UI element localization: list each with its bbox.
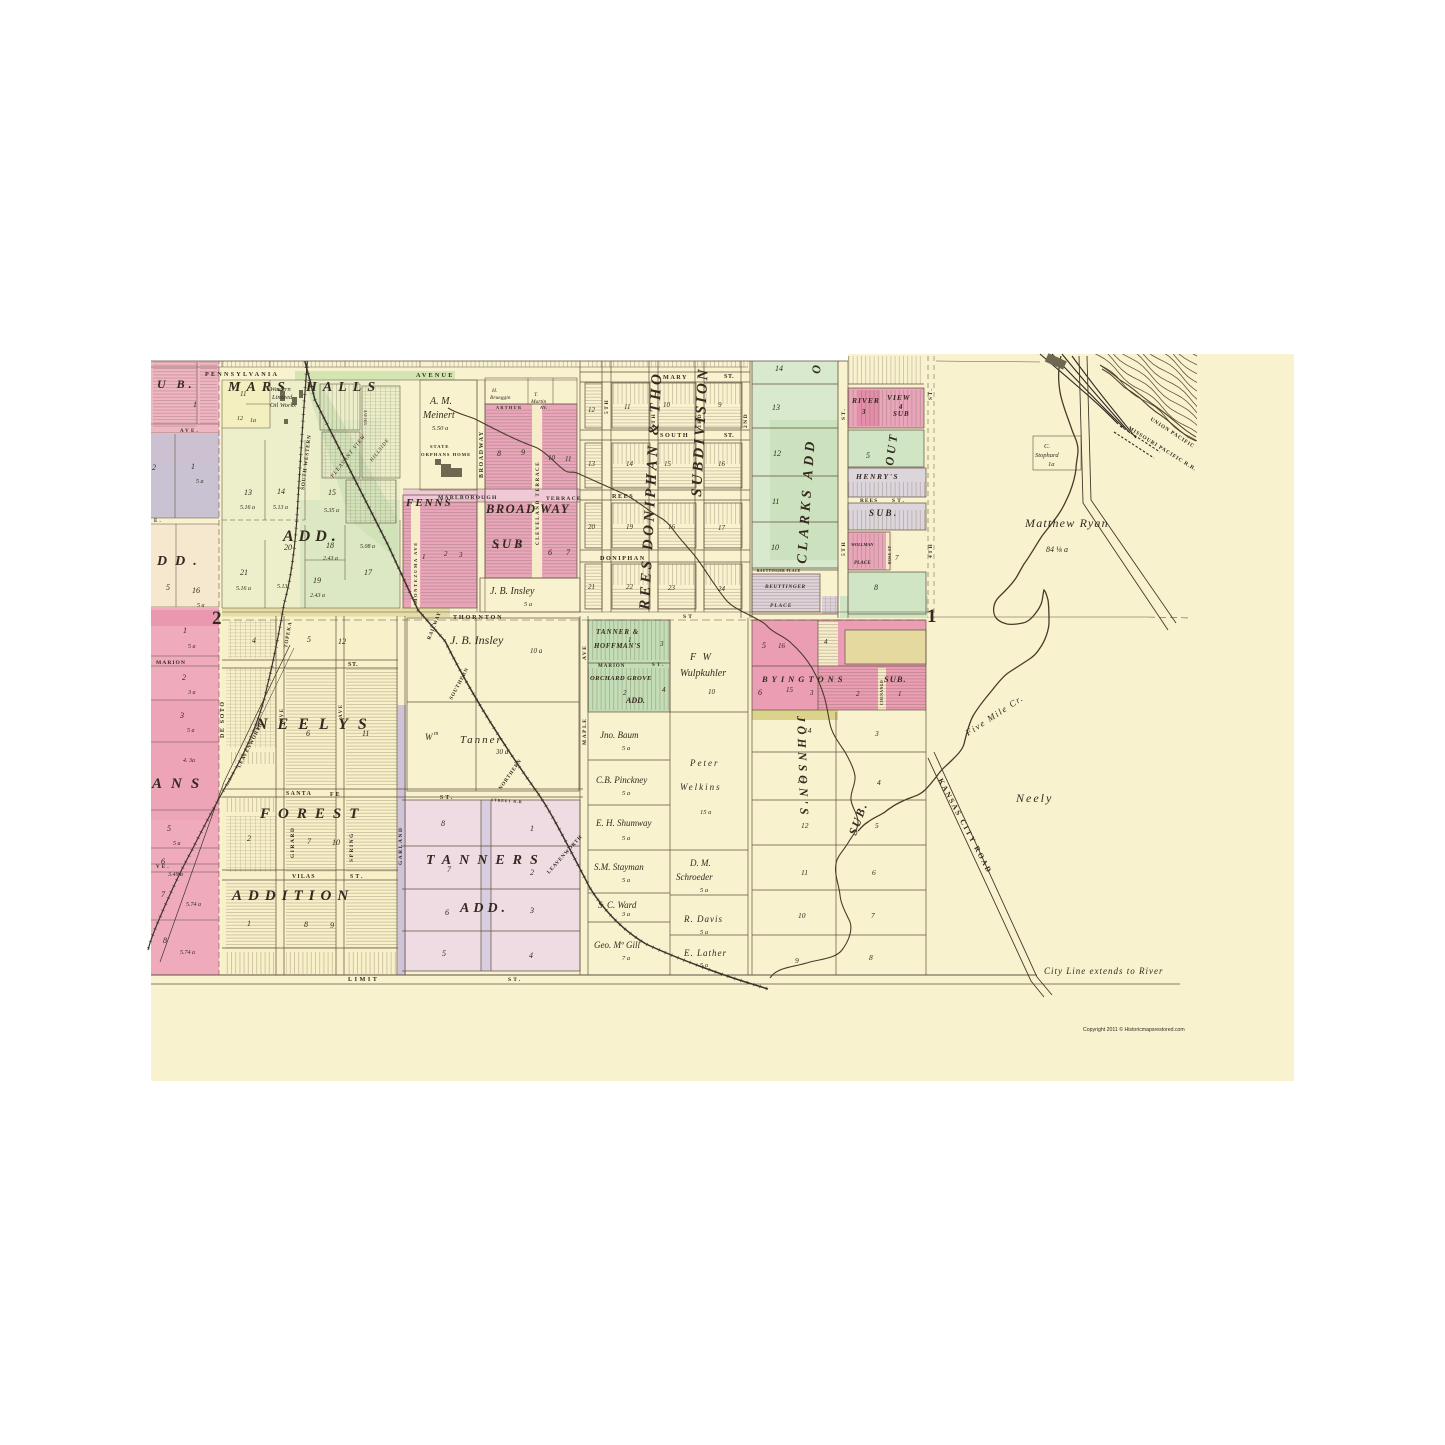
svg-text:FE: FE — [330, 792, 342, 798]
svg-text:5 a: 5 a — [622, 745, 630, 752]
svg-text:5.16 a: 5.16 a — [240, 505, 255, 511]
svg-text:10: 10 — [663, 401, 671, 409]
svg-text:5: 5 — [166, 583, 170, 592]
svg-text:Copyright 2011 © Historicmaps: Copyright 2011 © Historicmapsrestored.co… — [1083, 1026, 1185, 1033]
svg-text:5: 5 — [866, 451, 870, 460]
svg-text:16: 16 — [192, 586, 200, 595]
svg-text:6: 6 — [758, 688, 762, 697]
svg-text:BROAD: BROAD — [485, 502, 537, 516]
svg-text:WAY: WAY — [540, 502, 570, 516]
svg-text:5 a: 5 a — [622, 790, 630, 797]
svg-text:AVE: AVE — [582, 645, 588, 661]
svg-text:2: 2 — [623, 689, 627, 697]
svg-text:7 a: 7 a — [622, 955, 630, 962]
svg-text:22: 22 — [626, 583, 634, 591]
svg-text:BAUTTINGER PLACE: BAUTTINGER PLACE — [757, 569, 801, 573]
svg-text:Meinert: Meinert — [422, 410, 455, 421]
svg-text:19: 19 — [626, 523, 634, 531]
svg-text:LIMIT: LIMIT — [348, 976, 379, 983]
svg-text:6: 6 — [872, 868, 876, 877]
svg-text:BEUTTINGER: BEUTTINGER — [764, 584, 806, 590]
svg-text:20: 20 — [284, 543, 292, 552]
svg-text:3: 3 — [659, 640, 664, 648]
svg-text:14: 14 — [804, 726, 812, 735]
svg-text:11: 11 — [362, 729, 369, 738]
svg-text:7: 7 — [895, 554, 899, 562]
svg-text:8: 8 — [304, 920, 308, 929]
svg-text:8: 8 — [497, 449, 501, 458]
svg-text:3: 3 — [458, 551, 463, 559]
svg-text:20: 20 — [588, 523, 596, 531]
svg-text:ST.: ST. — [892, 498, 906, 504]
svg-text:3 a: 3 a — [187, 690, 196, 696]
svg-text:PENNSYLVANIA: PENNSYLVANIA — [205, 371, 279, 378]
svg-text:4TH: 4TH — [928, 543, 934, 558]
svg-text:Western: Western — [270, 386, 291, 393]
svg-text:2: 2 — [152, 463, 156, 472]
svg-text:3: 3 — [809, 689, 814, 697]
svg-text:12: 12 — [588, 406, 596, 414]
svg-text:City Line extends to River: City Line extends to River — [1044, 966, 1163, 976]
svg-text:1: 1 — [191, 462, 195, 471]
svg-text:Neely: Neely — [1015, 791, 1053, 805]
svg-text:SUB: SUB — [893, 410, 910, 418]
svg-text:5.13 a: 5.13 a — [273, 505, 288, 511]
svg-text:15 a: 15 a — [700, 809, 711, 816]
svg-text:15: 15 — [328, 488, 336, 497]
svg-text:4: 4 — [252, 636, 256, 645]
svg-text:SOUTH: SOUTH — [660, 432, 689, 439]
svg-text:Tanner: Tanner — [460, 734, 503, 746]
svg-text:2: 2 — [182, 673, 186, 682]
svg-text:5 a: 5 a — [196, 479, 204, 485]
svg-text:REES: REES — [860, 498, 878, 504]
svg-text:12: 12 — [773, 449, 781, 458]
svg-text:ST.: ST. — [508, 977, 522, 983]
svg-text:5 a: 5 a — [622, 877, 630, 884]
svg-text:ORPHANS HOME: ORPHANS HOME — [421, 452, 471, 457]
svg-text:1a: 1a — [1048, 461, 1055, 468]
svg-text:C.: C. — [1044, 443, 1050, 450]
svg-text:1: 1 — [422, 553, 426, 561]
svg-text:ST.: ST. — [724, 432, 734, 439]
svg-text:1: 1 — [183, 626, 187, 635]
svg-text:23: 23 — [668, 584, 676, 592]
svg-text:11: 11 — [772, 497, 779, 506]
svg-text:5 a: 5 a — [524, 601, 532, 608]
svg-text:14: 14 — [626, 460, 634, 468]
svg-text:4: 4 — [898, 403, 903, 411]
svg-text:5 a: 5 a — [188, 644, 196, 650]
svg-text:3 a: 3 a — [621, 911, 630, 918]
svg-text:13: 13 — [244, 488, 252, 497]
svg-text:Geo. M⁢º Gill: Geo. M⁢º Gill — [594, 940, 641, 950]
svg-text:ARTHUR: ARTHUR — [496, 405, 522, 410]
svg-text:21: 21 — [588, 583, 595, 591]
svg-text:17: 17 — [364, 568, 373, 577]
svg-text:SPRING: SPRING — [349, 832, 355, 862]
svg-text:5TH: 5TH — [604, 399, 610, 414]
svg-text:9: 9 — [718, 401, 722, 409]
svg-text:MAPLE: MAPLE — [582, 718, 588, 745]
svg-text:5.16 a: 5.16 a — [236, 586, 251, 592]
svg-text:R. Davis: R. Davis — [683, 914, 723, 924]
svg-text:10 a: 10 a — [530, 647, 543, 655]
svg-text:E. Lather: E. Lather — [683, 948, 727, 958]
svg-text:5 a: 5 a — [187, 728, 195, 734]
svg-text:THORNTON: THORNTON — [453, 614, 503, 621]
svg-text:2.43 a: 2.43 a — [323, 555, 338, 562]
svg-text:16: 16 — [778, 642, 786, 650]
svg-text:2: 2 — [444, 550, 448, 558]
svg-text:6: 6 — [161, 857, 165, 866]
svg-text:5.50 a: 5.50 a — [432, 425, 448, 432]
svg-text:Oil Works: Oil Works — [270, 402, 296, 409]
svg-text:13: 13 — [797, 776, 805, 785]
svg-text:FENNS: FENNS — [405, 497, 453, 509]
svg-text:4: 4 — [495, 542, 499, 551]
svg-text:9: 9 — [521, 448, 525, 457]
svg-text:VILAS: VILAS — [292, 874, 316, 880]
svg-text:2.43 a: 2.43 a — [310, 592, 325, 599]
svg-text:ST: ST — [683, 614, 694, 620]
svg-text:TANNER &: TANNER & — [596, 628, 639, 636]
svg-text:12: 12 — [237, 416, 243, 422]
svg-text:11: 11 — [565, 455, 571, 463]
svg-text:11: 11 — [624, 403, 630, 411]
svg-text:11: 11 — [240, 390, 246, 398]
svg-text:5.35 a: 5.35 a — [324, 508, 339, 514]
svg-text:5: 5 — [875, 821, 879, 830]
svg-text:1: 1 — [193, 400, 197, 409]
svg-text:5.08 a: 5.08 a — [360, 544, 375, 550]
svg-text:5 a: 5 a — [700, 929, 708, 936]
svg-text:3.49 a: 3.49 a — [167, 871, 183, 878]
svg-text:4: 4 — [662, 686, 666, 694]
svg-text:MARION: MARION — [598, 664, 625, 669]
svg-text:5: 5 — [442, 949, 446, 958]
svg-text:E.: E. — [154, 519, 163, 524]
svg-text:H.: H. — [491, 388, 497, 394]
svg-text:BROADWAY: BROADWAY — [479, 430, 485, 478]
svg-text:6: 6 — [306, 729, 310, 738]
svg-text:S. C. Ward: S. C. Ward — [598, 900, 637, 910]
svg-text:18: 18 — [326, 541, 334, 550]
svg-text:2: 2 — [247, 834, 251, 843]
svg-text:ST.: ST. — [928, 388, 934, 400]
svg-text:21: 21 — [240, 568, 248, 577]
svg-text:NEELYS: NEELYS — [255, 716, 377, 733]
svg-text:3: 3 — [179, 711, 184, 720]
svg-text:84 ⅛ a: 84 ⅛ a — [1046, 545, 1068, 554]
svg-text:MARY: MARY — [663, 374, 688, 381]
svg-text:14: 14 — [775, 364, 783, 373]
svg-text:RIVER: RIVER — [851, 396, 880, 405]
svg-text:5.74 a: 5.74 a — [186, 901, 201, 908]
svg-text:12: 12 — [338, 637, 346, 646]
svg-text:Peter: Peter — [689, 758, 720, 768]
svg-text:12: 12 — [801, 821, 809, 830]
svg-text:SUB.: SUB. — [884, 674, 907, 684]
svg-text:HOFFMAN'S: HOFFMAN'S — [593, 642, 641, 650]
svg-text:Stophard: Stophard — [1035, 452, 1059, 459]
svg-text:5.74 a: 5.74 a — [180, 949, 195, 956]
svg-text:Welkins: Welkins — [680, 782, 722, 792]
svg-text:C.B. Pinckney: C.B. Pinckney — [596, 775, 647, 785]
svg-text:10: 10 — [548, 454, 556, 462]
svg-text:9: 9 — [795, 956, 799, 965]
svg-text:HALLS: HALLS — [305, 380, 381, 395]
svg-text:15: 15 — [664, 460, 672, 468]
svg-text:14: 14 — [277, 487, 285, 496]
svg-text:1a: 1a — [250, 418, 256, 424]
svg-text:10: 10 — [798, 911, 806, 920]
svg-text:ST.: ST. — [724, 373, 734, 380]
svg-text:m: m — [434, 731, 439, 737]
svg-text:PLACE: PLACE — [770, 603, 792, 609]
svg-text:AV.: AV. — [540, 405, 548, 410]
svg-text:8: 8 — [441, 819, 445, 828]
svg-text:T.: T. — [534, 392, 538, 398]
svg-text:SUB.: SUB. — [869, 508, 899, 518]
svg-text:ADDITION: ADDITION — [231, 888, 354, 904]
svg-text:2: 2 — [856, 690, 860, 698]
svg-text:3: 3 — [874, 729, 879, 738]
svg-text:24: 24 — [718, 585, 726, 593]
svg-text:DD.: DD. — [156, 554, 205, 569]
svg-text:HENRY'S: HENRY'S — [855, 472, 899, 481]
svg-text:Wulpkuhler: Wulpkuhler — [680, 668, 726, 679]
svg-text:8: 8 — [163, 936, 167, 945]
svg-text:2ND: 2ND — [743, 413, 749, 428]
svg-text:STATE: STATE — [430, 444, 449, 449]
svg-text:D. M.: D. M. — [689, 858, 711, 868]
svg-text:6: 6 — [445, 908, 449, 917]
svg-text:MARION: MARION — [156, 660, 186, 666]
svg-text:ANS: ANS — [151, 776, 208, 792]
svg-text:AVENUE: AVENUE — [416, 372, 455, 379]
svg-text:5 a: 5 a — [700, 887, 708, 894]
svg-text:3: 3 — [861, 408, 866, 416]
svg-text:3: 3 — [529, 906, 534, 915]
svg-text:7: 7 — [871, 911, 875, 920]
svg-text:WOLLMAN: WOLLMAN — [851, 542, 874, 547]
svg-text:E. H. Shumway: E. H. Shumway — [595, 818, 652, 828]
svg-text:SANTA: SANTA — [286, 791, 312, 797]
svg-text:DE SOTO: DE SOTO — [220, 700, 226, 738]
svg-text:O: O — [809, 363, 824, 375]
svg-text:ST.: ST. — [348, 661, 358, 668]
svg-text:5.13: 5.13 — [277, 584, 288, 590]
svg-text:1: 1 — [247, 919, 251, 928]
svg-text:1: 1 — [530, 824, 534, 833]
svg-text:15: 15 — [786, 686, 794, 694]
svg-text:A. M.: A. M. — [429, 396, 452, 407]
svg-text:4: 4 — [824, 638, 828, 646]
svg-text:1: 1 — [628, 636, 632, 644]
svg-text:8: 8 — [874, 583, 878, 592]
svg-text:4: 4 — [877, 778, 881, 787]
svg-text:17: 17 — [718, 524, 726, 532]
svg-text:J. B. Insley: J. B. Insley — [490, 586, 535, 597]
svg-text:5 a: 5 a — [700, 962, 708, 969]
svg-text:2: 2 — [530, 868, 534, 877]
svg-text:5: 5 — [762, 641, 766, 650]
svg-text:PLACE: PLACE — [854, 560, 871, 566]
svg-text:5: 5 — [307, 635, 311, 644]
svg-text:5 a: 5 a — [173, 841, 181, 847]
svg-text:VIEW: VIEW — [887, 393, 911, 402]
svg-text:ORCHARD GROVE: ORCHARD GROVE — [590, 675, 652, 682]
svg-text:13: 13 — [588, 460, 596, 468]
svg-text:10: 10 — [332, 838, 340, 847]
svg-text:FOREST: FOREST — [259, 806, 366, 822]
svg-text:GARLAND: GARLAND — [398, 827, 404, 865]
svg-text:AVE.: AVE. — [180, 429, 200, 434]
svg-text:1: 1 — [898, 690, 902, 698]
svg-text:ST.: ST. — [350, 874, 365, 880]
svg-text:13: 13 — [772, 403, 780, 412]
svg-text:BYINGTONS: BYINGTONS — [761, 674, 847, 684]
svg-text:5: 5 — [516, 540, 520, 549]
svg-text:TANNERS: TANNERS — [426, 853, 546, 868]
svg-text:1: 1 — [927, 606, 937, 627]
svg-text:16: 16 — [718, 460, 726, 468]
svg-text:16: 16 — [668, 523, 676, 531]
svg-text:30 a: 30 a — [495, 748, 509, 756]
svg-text:ADD.: ADD. — [625, 696, 645, 705]
svg-text:19: 19 — [313, 576, 321, 585]
svg-text:ST.: ST. — [841, 408, 847, 420]
svg-text:10: 10 — [708, 688, 716, 696]
svg-text:2: 2 — [212, 608, 222, 629]
svg-text:J. B. Insley: J. B. Insley — [450, 633, 504, 647]
svg-text:U B.: U B. — [157, 377, 196, 391]
svg-text:5TH: 5TH — [841, 541, 847, 556]
svg-text:4. 3a: 4. 3a — [183, 757, 195, 764]
svg-text:5TH AVE: 5TH AVE — [364, 409, 368, 425]
svg-text:REES: REES — [612, 493, 634, 500]
svg-text:10: 10 — [771, 543, 779, 552]
svg-text:ST.: ST. — [652, 663, 666, 668]
svg-text:Martin: Martin — [530, 399, 547, 405]
svg-text:5 a: 5 a — [622, 835, 630, 842]
svg-text:11: 11 — [801, 868, 808, 877]
svg-text:ROSE ST: ROSE ST — [888, 545, 892, 564]
svg-text:6: 6 — [548, 548, 552, 557]
svg-text:F W: F W — [689, 652, 713, 663]
svg-text:5: 5 — [167, 824, 171, 833]
svg-text:ADD.: ADD. — [459, 901, 509, 916]
svg-text:Matthew Ryan: Matthew Ryan — [1024, 516, 1109, 530]
svg-text:ST.: ST. — [440, 795, 455, 801]
svg-text:GIRARD: GIRARD — [290, 827, 296, 858]
svg-text:Jno. Baum: Jno. Baum — [600, 730, 639, 740]
svg-text:8: 8 — [869, 953, 873, 962]
svg-text:MONTEZUMA AVE: MONTEZUMA AVE — [413, 541, 418, 603]
svg-text:9: 9 — [330, 921, 334, 930]
svg-text:4: 4 — [529, 951, 533, 960]
svg-text:S.M. Stayman: S.M. Stayman — [594, 862, 644, 872]
svg-text:5 a: 5 a — [197, 603, 205, 609]
svg-text:Linseed: Linseed — [271, 394, 293, 401]
svg-text:Brueggin: Brueggin — [490, 395, 511, 401]
svg-text:Schroeder: Schroeder — [676, 872, 713, 882]
